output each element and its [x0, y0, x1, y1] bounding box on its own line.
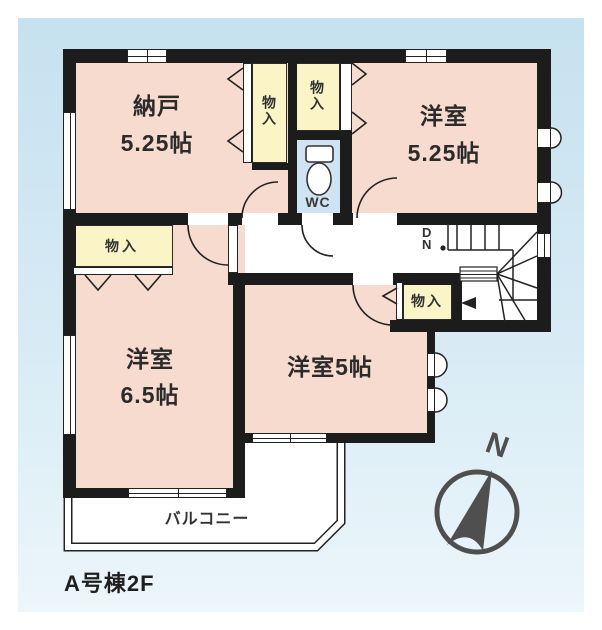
closet-hall-label: 物入 [411, 291, 443, 311]
window-tick [426, 50, 427, 62]
room65-name-label: 洋室 [126, 340, 174, 374]
balcony-label: バルコニー [165, 505, 250, 529]
wc-label: WC [305, 194, 330, 210]
wall-hall-bottom [228, 273, 462, 285]
wall-closets-wc-left [288, 63, 297, 225]
stairs-down-label: D N [422, 227, 431, 251]
window-room525-casement-2 [537, 182, 551, 203]
closet-room65-door-panel [73, 267, 173, 275]
closet-room65-label: 物入 [105, 236, 139, 256]
window-stairs-right [537, 233, 551, 258]
stairs-down-letter-n: N [422, 239, 431, 251]
window-room5-casement-2 [427, 388, 435, 412]
room525-size-label: 5.25帖 [408, 134, 481, 168]
window-line [544, 234, 545, 257]
window-room525-casement-1 [537, 128, 551, 148]
closet-room525-label: 物入 [307, 80, 327, 112]
room525-name-label: 洋室 [420, 97, 468, 131]
window-nando-left [63, 112, 76, 210]
wall-stairs-bottom [390, 320, 551, 332]
window-tick [178, 489, 179, 497]
window-room5-casement-1 [427, 353, 435, 377]
closet-nando-label: 物入 [259, 95, 279, 127]
door-opening-room525 [353, 213, 397, 225]
wall-closet-hall-right [452, 273, 462, 320]
window-room525-top [405, 49, 447, 63]
window-room65-balcony-door [128, 488, 227, 498]
nando-name-label: 納戸 [133, 87, 181, 121]
closet-hall-door-panel [396, 282, 403, 320]
window-line [70, 113, 71, 209]
door-opening-nando [242, 213, 278, 225]
room65-size-label: 6.5帖 [121, 376, 180, 410]
wall-room5-right [427, 330, 435, 443]
closet-room525-door-panel [340, 63, 352, 131]
window-line [70, 336, 71, 434]
room65-door-leaf [228, 225, 238, 273]
window-room65-left [63, 335, 76, 435]
closet-nando-door-panel [243, 63, 252, 163]
window-tick [147, 50, 148, 62]
nando-size-label: 5.25帖 [121, 124, 194, 158]
window-nando-top [127, 49, 167, 63]
door-opening-wc [302, 213, 333, 225]
door-opening-room5 [353, 273, 393, 285]
floor-plan-canvas: 納戸 5.25帖 洋室 5.25帖 洋室 6.5帖 洋室5帖 WC バルコニー … [0, 0, 602, 630]
floor-title: A号棟2F [64, 566, 155, 598]
window-tick [290, 434, 291, 442]
wall-wc-right [340, 131, 352, 225]
window-room5-balcony-door [252, 433, 327, 443]
wall-room65-room5-divider [233, 273, 245, 498]
door-opening-room65 [188, 213, 228, 225]
room5-name-label: 洋室5帖 [287, 348, 373, 382]
